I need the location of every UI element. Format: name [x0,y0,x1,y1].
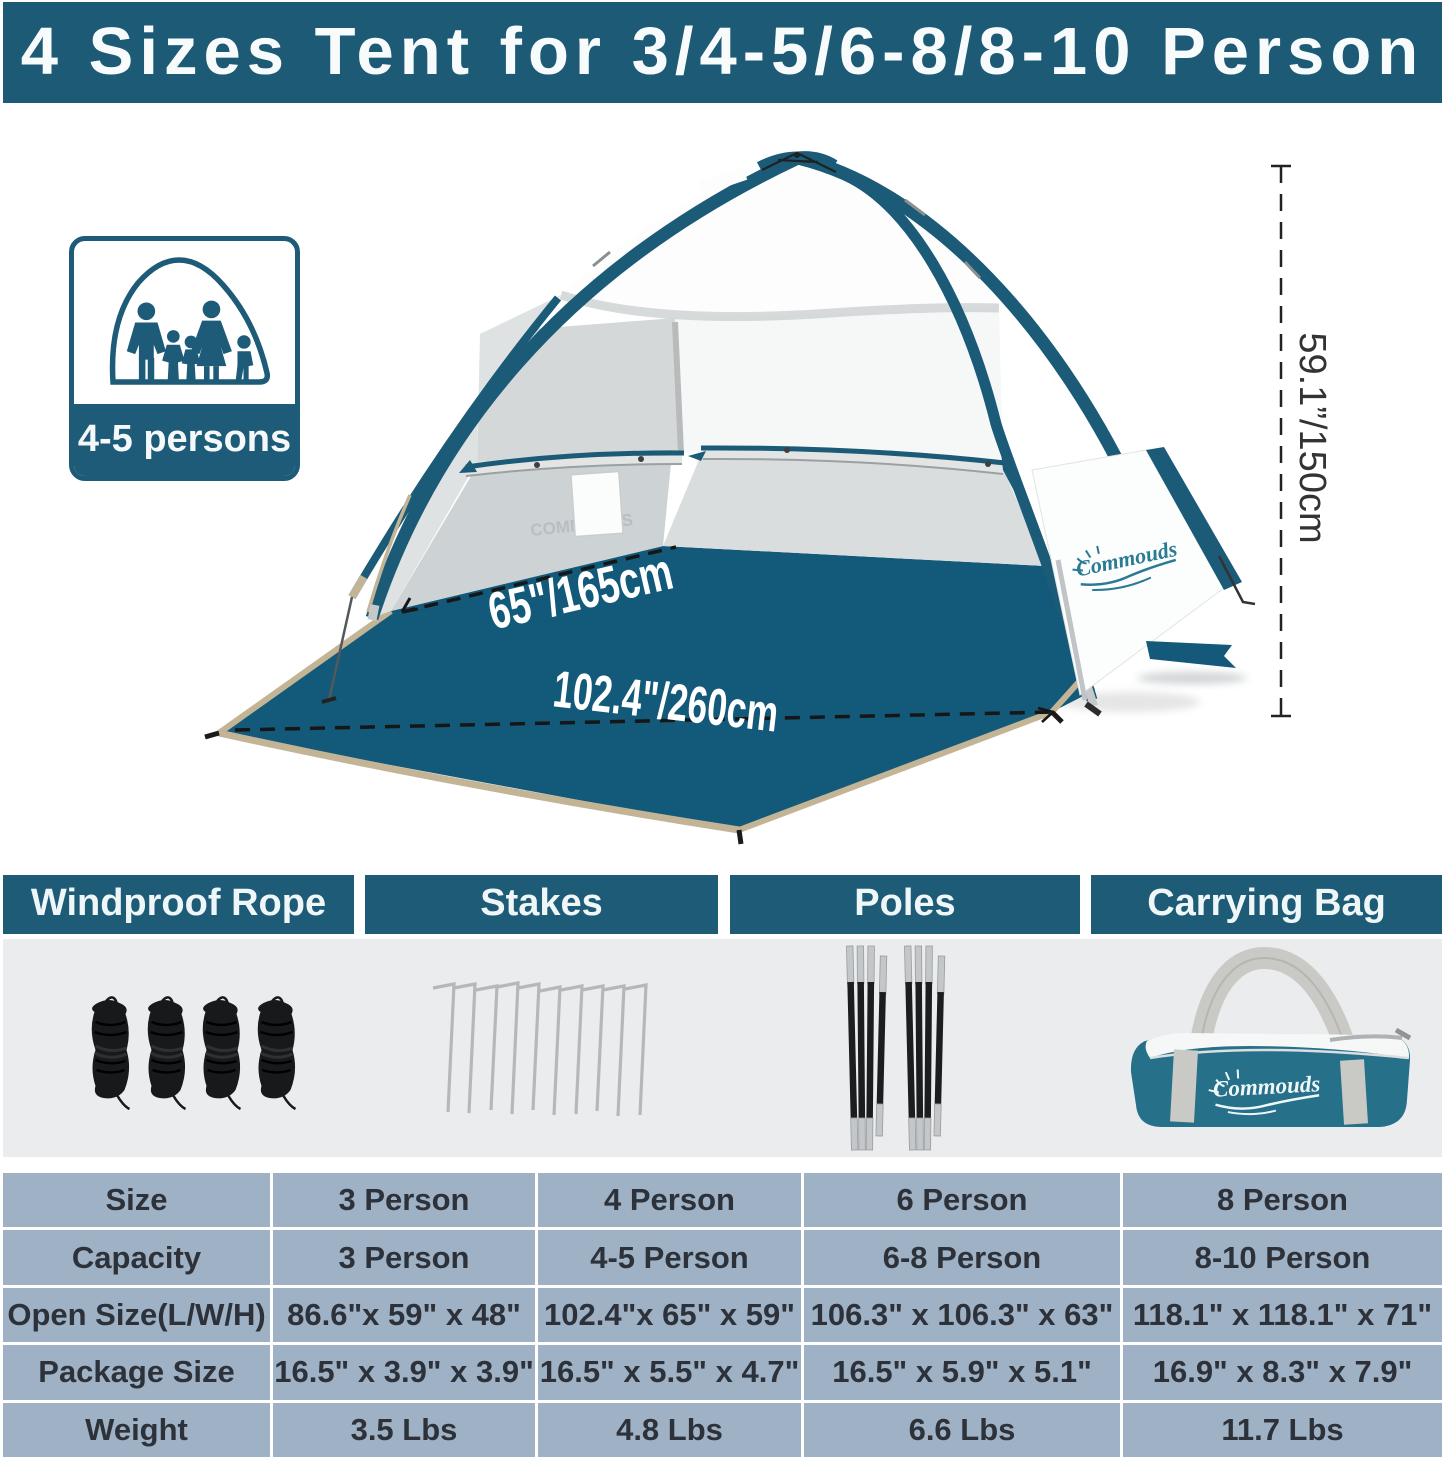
svg-text:59.1”/150cm: 59.1”/150cm [1291,332,1333,543]
